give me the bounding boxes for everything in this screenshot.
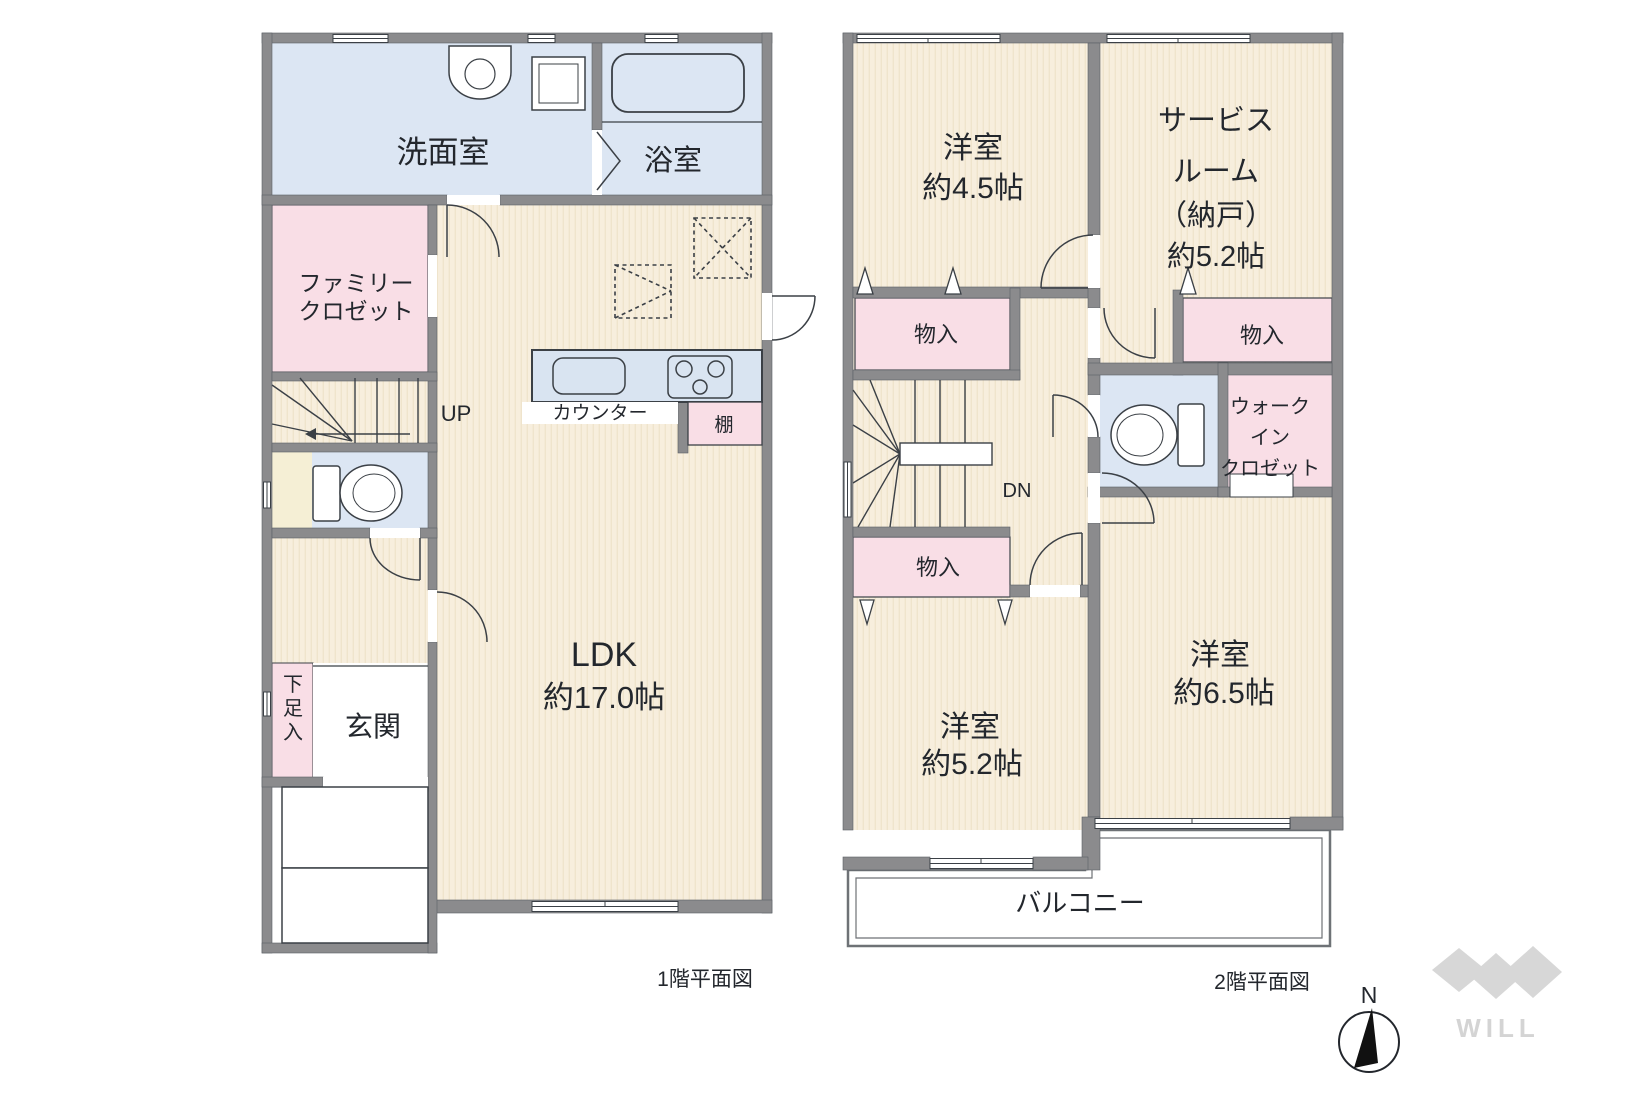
label-family-closet-2: クロゼット bbox=[299, 298, 414, 324]
caption-floor1: 1階平面図 bbox=[657, 968, 753, 991]
label-bedroom52-2: 約5.2帖 bbox=[921, 748, 1023, 781]
label-washroom: 洗面室 bbox=[397, 135, 490, 170]
floorplan-page: 洗面室 浴室 ファミリー クロゼット UP LDK 約17.0帖 玄関 下 足 … bbox=[0, 0, 1639, 1093]
label-bedroom45-1: 洋室 bbox=[943, 132, 1003, 165]
label-service-2: ルーム bbox=[1173, 156, 1259, 188]
washer-pan-icon bbox=[532, 57, 585, 110]
label-storage-b: 物入 bbox=[1240, 323, 1284, 348]
label-family-closet-1: ファミリー bbox=[299, 270, 414, 296]
logo-diamond-icon bbox=[1504, 946, 1562, 998]
stairs-1f bbox=[272, 378, 428, 443]
will-logo: WILL bbox=[1432, 946, 1562, 1043]
label-bedroom52-1: 洋室 bbox=[940, 711, 1000, 744]
label-shoe-3: 入 bbox=[283, 722, 303, 744]
label-stairs-down: DN bbox=[1003, 480, 1032, 502]
door-arc bbox=[772, 296, 815, 340]
label-bedroom45-2: 約4.5帖 bbox=[922, 172, 1024, 205]
label-shelf: 棚 bbox=[714, 414, 733, 436]
label-wic-1: ウォーク bbox=[1230, 395, 1310, 418]
floor-plan-2f: 洋室 約4.5帖 サービス ルーム （納戸） 約5.2帖 物入 物入 物入 ウォ… bbox=[843, 33, 1343, 994]
caption-floor2: 2階平面図 bbox=[1214, 971, 1310, 994]
label-service-1: サービス bbox=[1158, 105, 1274, 137]
toilet-icon-2f bbox=[1111, 404, 1204, 466]
label-balcony: バルコニー bbox=[1015, 888, 1144, 918]
label-bathroom: 浴室 bbox=[644, 144, 702, 177]
floorplan-drawing: 洗面室 浴室 ファミリー クロゼット UP LDK 約17.0帖 玄関 下 足 … bbox=[0, 0, 1639, 1093]
label-wic-2: イン bbox=[1250, 427, 1290, 449]
toilet-side-strip bbox=[272, 452, 312, 528]
floor-plan-1f: 洗面室 浴室 ファミリー クロゼット UP LDK 約17.0帖 玄関 下 足 … bbox=[262, 33, 815, 991]
label-shoe-1: 下 bbox=[283, 674, 303, 696]
label-bedroom65-1: 洋室 bbox=[1190, 639, 1250, 672]
room-ldk bbox=[437, 205, 762, 900]
stairs-2f-rail bbox=[900, 443, 992, 465]
entrance-porch bbox=[282, 787, 428, 943]
label-wic-3: クロゼット bbox=[1220, 457, 1320, 480]
label-entrance: 玄関 bbox=[345, 711, 401, 742]
label-storage-a: 物入 bbox=[914, 322, 958, 347]
label-counter: カウンター bbox=[552, 402, 647, 424]
sink-icon bbox=[449, 46, 511, 99]
compass-north-label: N bbox=[1361, 982, 1378, 1008]
label-stairs-up: UP bbox=[441, 401, 472, 426]
hall-1f bbox=[272, 538, 428, 663]
label-shoe-2: 足 bbox=[283, 698, 303, 720]
toilet-icon-1f bbox=[313, 465, 402, 521]
label-service-3: （納戸） bbox=[1158, 199, 1274, 232]
label-service-4: 約5.2帖 bbox=[1167, 240, 1265, 273]
label-ldk-size: 約17.0帖 bbox=[543, 680, 665, 715]
label-ldk: LDK bbox=[571, 636, 637, 674]
logo-text: WILL bbox=[1456, 1013, 1540, 1043]
compass: N bbox=[1339, 982, 1399, 1072]
label-bedroom65-2: 約6.5帖 bbox=[1173, 677, 1275, 710]
label-storage-c: 物入 bbox=[916, 555, 960, 580]
